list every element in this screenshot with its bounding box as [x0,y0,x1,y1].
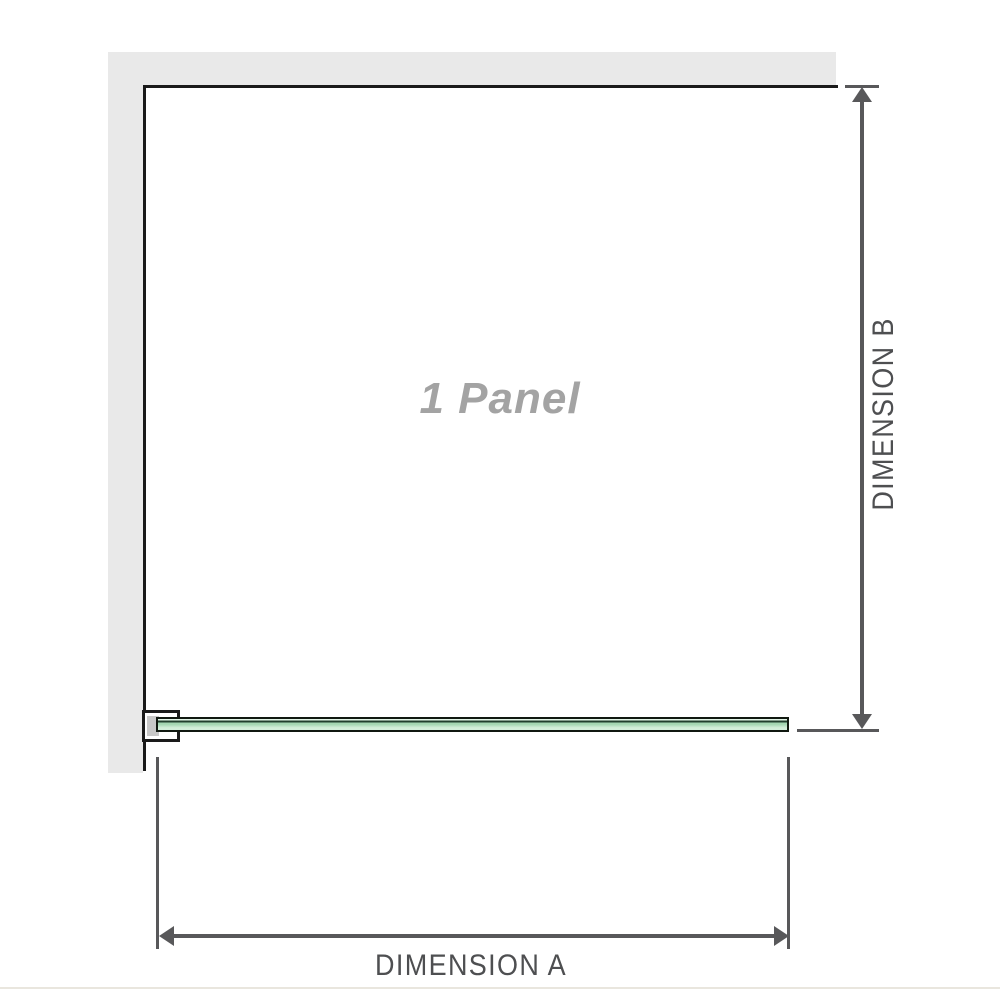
wall-left [108,52,143,773]
dimension-b-label: DIMENSION B [867,317,901,510]
dimension-a-right-extension [787,757,790,949]
glass-panel-bar [156,717,789,732]
arrow-down-icon [852,714,872,729]
dimension-a-left-extension [156,757,159,949]
dimension-b-bottom-tick [797,729,879,732]
baseline-rule [0,987,1000,989]
panel-count-label: 1 Panel [419,374,580,424]
arrow-right-icon [774,926,789,946]
diagram-canvas: 1 Panel DIMENSION B DIMENSION A [0,0,1000,1000]
dimension-b-line [860,96,864,721]
dimension-a-line [170,934,778,938]
wall-top [108,52,836,85]
arrow-left-icon [159,926,174,946]
dimension-a-label: DIMENSION A [375,949,567,983]
arrow-up-icon [852,87,872,102]
